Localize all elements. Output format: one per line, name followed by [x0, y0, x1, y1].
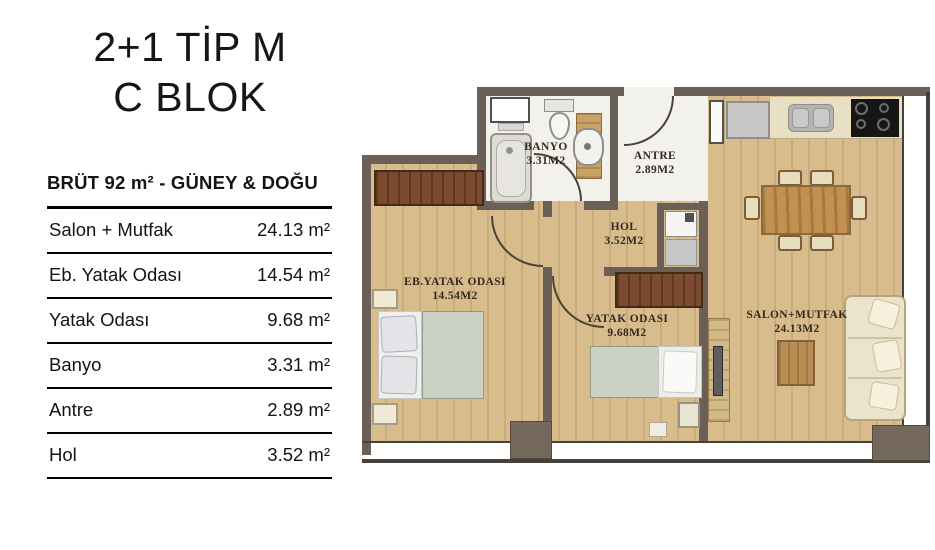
dining-table	[761, 185, 851, 235]
fridge	[726, 101, 770, 139]
chair	[778, 170, 802, 186]
room-label: Banyo	[49, 354, 101, 376]
room-label: Hol	[49, 444, 77, 466]
wall-segment	[543, 267, 552, 443]
sofa-seam	[848, 377, 902, 379]
burner	[877, 118, 890, 131]
room-area: 3.52M2	[572, 234, 676, 248]
room-area: 3.31M2	[501, 154, 591, 168]
room-label: Eb. Yatak Odası	[49, 264, 182, 286]
room-label: Antre	[49, 399, 93, 421]
chair	[810, 170, 834, 186]
table-row: Antre 2.89 m²	[47, 389, 332, 434]
chair	[851, 196, 867, 220]
plan-title-line2: C BLOK	[40, 72, 340, 122]
room-name: YATAK ODASI	[567, 312, 687, 326]
plan-title: 2+1 TİP M C BLOK	[40, 22, 340, 122]
room-area: 9.68M2	[567, 326, 687, 340]
room-area-value: 14.54 m²	[257, 264, 330, 286]
window-sill	[498, 123, 524, 131]
room-name: BANYO	[501, 140, 591, 154]
burner	[855, 102, 868, 115]
floor-plan: BANYO 3.31M2 ANTRE 2.89M2 HOL 3.52M2 EB.…	[362, 85, 932, 483]
burner	[856, 119, 866, 129]
room-label-banyo: BANYO 3.31M2	[501, 140, 591, 169]
nightstand	[372, 403, 398, 425]
window-band	[926, 92, 930, 463]
wall-segment	[477, 87, 624, 96]
wardrobe	[374, 170, 484, 206]
wall-segment	[699, 201, 708, 443]
kitchen-cabinet	[709, 100, 724, 144]
nightstand	[649, 422, 667, 437]
bed-pillow	[380, 315, 418, 353]
room-label-bedroom: YATAK ODASI 9.68M2	[567, 312, 687, 341]
room-area-value: 24.13 m²	[257, 219, 330, 241]
wardrobe	[615, 272, 703, 308]
burner	[879, 103, 889, 113]
plan-title-line1: 2+1 TİP M	[40, 22, 340, 72]
wall-segment	[543, 201, 552, 217]
closet-marker	[685, 213, 694, 222]
room-label-master-bedroom: EB.YATAK ODASI 14.54M2	[395, 275, 515, 304]
room-name: ANTRE	[609, 149, 701, 163]
sofa-pillow	[872, 339, 903, 373]
room-area: 2.89M2	[609, 163, 701, 177]
tv	[713, 346, 723, 396]
bed-pillow	[380, 355, 417, 394]
table-row: Hol 3.52 m²	[47, 434, 332, 479]
room-area: 24.13M2	[737, 322, 857, 336]
area-table: Salon + Mutfak 24.13 m² Eb. Yatak Odası …	[47, 206, 332, 479]
room-label-antre: ANTRE 2.89M2	[609, 149, 701, 178]
table-row: Eb. Yatak Odası 14.54 m²	[47, 254, 332, 299]
room-name: EB.YATAK ODASI	[395, 275, 515, 289]
single-bed-blanket	[590, 346, 660, 398]
room-area-value: 3.52 m²	[267, 444, 330, 466]
sofa-pillow	[868, 381, 900, 411]
nightstand	[678, 402, 700, 428]
bed-pillow	[662, 350, 697, 393]
room-area-value: 2.89 m²	[267, 399, 330, 421]
room-area: 14.54M2	[395, 289, 515, 303]
table-row: Banyo 3.31 m²	[47, 344, 332, 389]
area-summary: BRÜT 92 m² - GÜNEY & DOĞU Salon + Mutfak…	[47, 172, 332, 479]
room-area-value: 3.31 m²	[267, 354, 330, 376]
column	[872, 425, 930, 461]
gross-area-header: BRÜT 92 m² - GÜNEY & DOĞU	[47, 172, 332, 194]
window-band	[362, 459, 930, 463]
table-row: Salon + Mutfak 24.13 m²	[47, 209, 332, 254]
room-label: Salon + Mutfak	[49, 219, 173, 241]
wall-segment	[610, 87, 618, 201]
window-band	[362, 441, 930, 443]
room-label-living-room: SALON+MUTFAK 24.13M2	[737, 308, 857, 337]
sink-bowl	[792, 108, 809, 128]
coffee-table	[777, 340, 815, 386]
bathroom-window	[490, 97, 530, 123]
wall-segment	[674, 87, 930, 96]
room-name: SALON+MUTFAK	[737, 308, 857, 322]
room-label: Yatak Odası	[49, 309, 149, 331]
chair	[778, 235, 802, 251]
room-name: HOL	[572, 220, 676, 234]
wall-segment	[362, 155, 371, 455]
toilet-tank	[544, 99, 574, 112]
wall-segment	[584, 201, 618, 210]
column	[510, 421, 552, 459]
room-area-value: 9.68 m²	[267, 309, 330, 331]
chair	[744, 196, 760, 220]
chair	[810, 235, 834, 251]
double-bed-blanket	[422, 311, 484, 399]
table-row: Yatak Odası 9.68 m²	[47, 299, 332, 344]
room-label-hol: HOL 3.52M2	[572, 220, 676, 249]
wall-segment	[362, 155, 484, 164]
sink-bowl	[813, 108, 830, 128]
